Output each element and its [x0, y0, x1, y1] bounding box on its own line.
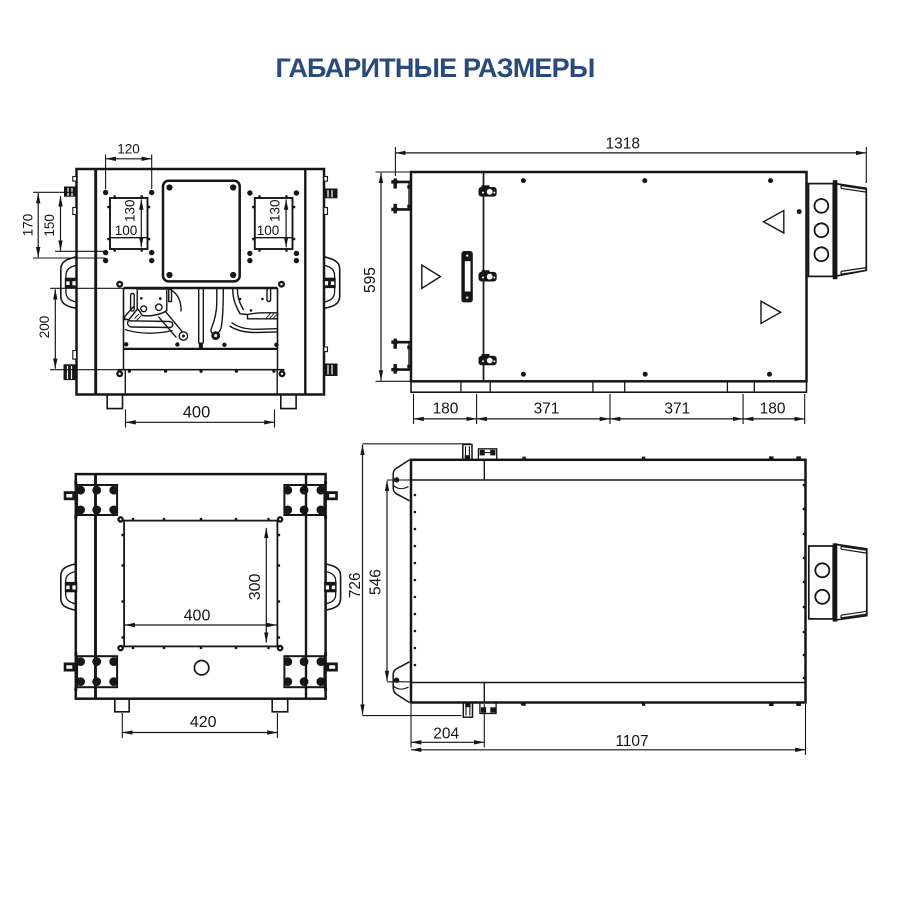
svg-text:100: 100	[257, 223, 280, 238]
svg-text:300: 300	[247, 573, 264, 600]
svg-text:546: 546	[367, 569, 384, 595]
svg-text:595: 595	[362, 267, 379, 293]
svg-text:180: 180	[760, 401, 786, 418]
svg-text:400: 400	[184, 608, 211, 625]
svg-text:371: 371	[534, 401, 560, 418]
svg-text:180: 180	[433, 401, 459, 418]
svg-text:130: 130	[267, 199, 282, 222]
svg-text:371: 371	[664, 401, 690, 418]
svg-text:420: 420	[190, 714, 217, 731]
svg-text:400: 400	[183, 404, 211, 422]
svg-text:130: 130	[123, 199, 138, 222]
svg-text:200: 200	[37, 316, 52, 339]
svg-text:100: 100	[115, 223, 138, 238]
svg-text:170: 170	[20, 214, 35, 237]
svg-text:1107: 1107	[615, 733, 648, 750]
svg-text:120: 120	[117, 142, 140, 157]
svg-text:726: 726	[347, 572, 364, 598]
svg-text:1318: 1318	[605, 136, 639, 153]
svg-text:204: 204	[433, 725, 459, 742]
svg-text:150: 150	[42, 214, 57, 237]
